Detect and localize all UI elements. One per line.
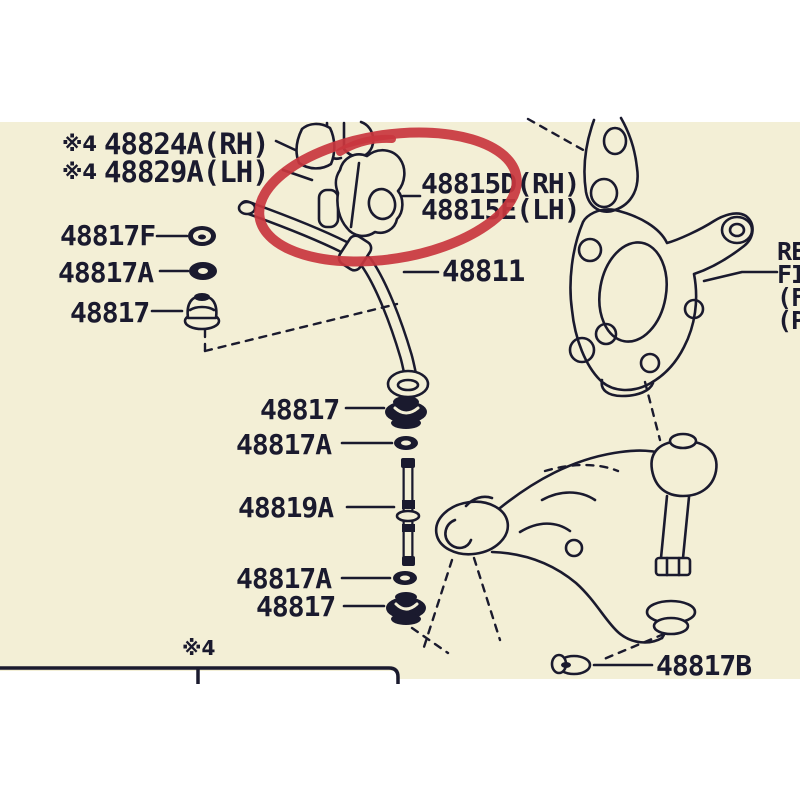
dashed-leader-bolt <box>604 634 664 659</box>
link-rod-icon <box>347 458 419 566</box>
parts-diagram: ※4 48824A(RH) ※4 48829A(LH) 48817F 48817… <box>0 0 800 800</box>
bracket-label-lh: ※4 48829A(LH) <box>62 158 269 187</box>
cushion-icon <box>344 592 426 625</box>
dashed-leader-grommet <box>205 304 397 351</box>
bolt-icon <box>552 655 652 674</box>
part-label-48817-left: 48817 <box>70 299 149 327</box>
part-label-48817a-left: 48817A <box>58 259 153 287</box>
steering-knuckle-drawing <box>570 118 777 396</box>
table-footnote-marker: ※4 <box>182 638 215 658</box>
washer-icon <box>342 436 418 450</box>
reference-mark: ※4 <box>62 162 97 183</box>
link-label-48817-top: 48817 <box>260 396 339 424</box>
bushing-label-lh: 48815E(LH) <box>421 196 580 224</box>
stabilizer-bar-drawing <box>239 202 428 397</box>
arm-bolt-label: 48817B <box>656 652 751 680</box>
link-label-48817a-top: 48817A <box>236 431 331 459</box>
nut-icon <box>157 226 216 246</box>
grommet-icon <box>152 293 219 329</box>
reference-mark: ※4 <box>62 134 97 155</box>
bar-label: 48811 <box>442 257 524 286</box>
cushion-icon <box>346 396 427 429</box>
washer-icon <box>160 262 217 280</box>
stabilizer-bushing-bracket-drawing <box>297 124 420 236</box>
washer-icon <box>342 571 417 585</box>
link-label-48817-bottom: 48817 <box>256 593 335 621</box>
lower-control-arm-drawing <box>424 434 716 647</box>
dashed-leader-top <box>528 119 585 151</box>
link-label-48819a: 48819A <box>238 494 333 522</box>
side-note-line-4: (P <box>777 308 800 333</box>
part-number: 48829A(LH) <box>104 158 269 187</box>
part-label-48817f: 48817F <box>60 222 155 250</box>
link-label-48817a-bottom: 48817A <box>236 565 331 593</box>
stabilizer-link-drawing <box>342 396 448 653</box>
table-outline <box>0 668 398 685</box>
